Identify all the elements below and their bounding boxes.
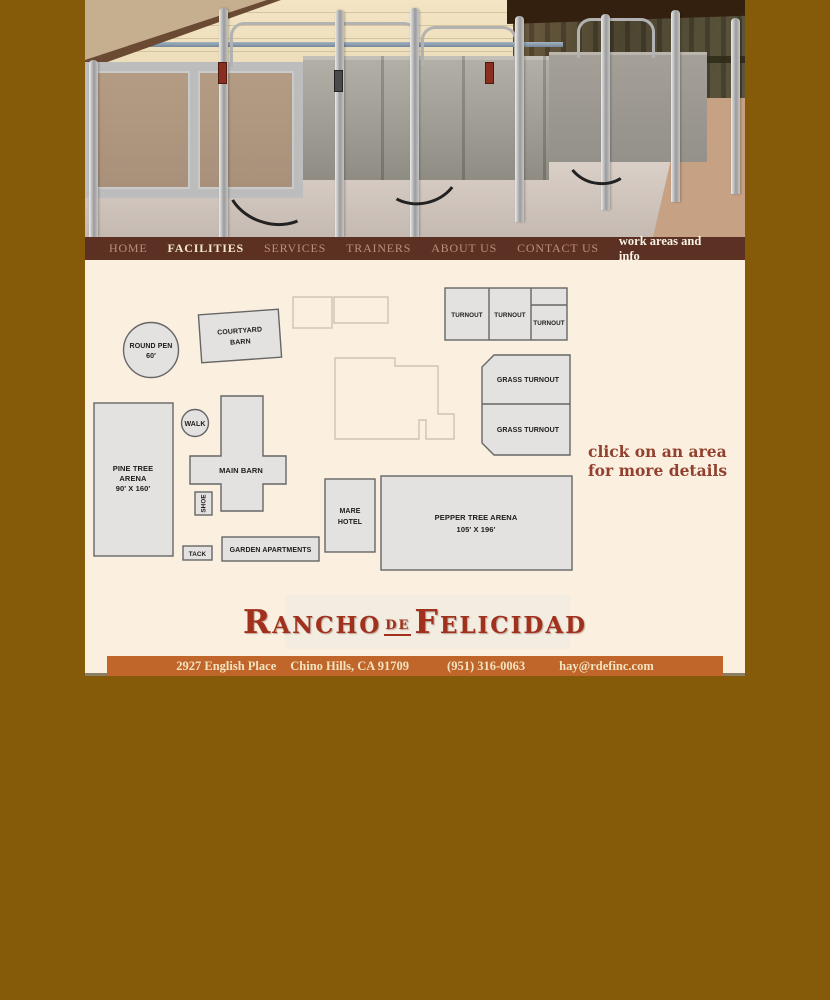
svg-text:SHOE: SHOE — [201, 494, 208, 512]
svg-text:ROUND PEN: ROUND PEN — [130, 343, 173, 350]
logo-word-rancho: Rancho — [243, 602, 381, 641]
map-walker[interactable]: WALK — [182, 410, 209, 437]
map-round-pen[interactable]: ROUND PEN 60′ — [124, 323, 179, 378]
main-nav: HOME FACILITIES SERVICES TRAINERS ABOUT … — [85, 237, 745, 260]
header-photo — [85, 0, 745, 237]
photo-overhead-arm — [230, 22, 418, 67]
svg-text:MAIN BARN: MAIN BARN — [219, 466, 263, 475]
svg-text:TURNOUT: TURNOUT — [494, 312, 526, 319]
svg-text:TACK: TACK — [189, 551, 207, 558]
footer-phone: (951) 316-0063 — [447, 659, 525, 674]
map-shoe[interactable]: SHOE — [195, 492, 212, 515]
svg-text:GRASS TURNOUT: GRASS TURNOUT — [497, 427, 560, 434]
nav-item-facilities[interactable]: FACILITIES — [168, 241, 244, 256]
nav-item-aboutus[interactable]: ABOUT US — [431, 241, 497, 256]
nav-section-label: work areas and info — [619, 234, 721, 264]
svg-text:MARE: MARE — [339, 508, 360, 515]
svg-text:BARN: BARN — [230, 338, 251, 346]
map-hint-line1: click on an area — [588, 442, 738, 461]
footer-bar: 2927 English Place Chino Hills, CA 91709… — [107, 656, 723, 676]
nav-item-home[interactable]: HOME — [109, 241, 148, 256]
map-outline-building — [334, 297, 388, 323]
photo-overhead-arm — [421, 26, 517, 66]
svg-text:GRASS TURNOUT: GRASS TURNOUT — [497, 377, 560, 384]
logo-word-de: de — [384, 612, 411, 636]
facilities-map: ROUND PEN 60′ COURTYARD BARN TURNOUT TUR… — [85, 260, 745, 596]
page: HOME FACILITIES SERVICES TRAINERS ABOUT … — [85, 0, 745, 676]
svg-text:HOTEL: HOTEL — [338, 519, 363, 526]
nav-item-trainers[interactable]: TRAINERS — [346, 241, 411, 256]
photo-post — [731, 18, 740, 194]
map-hint-text: click on an area for more details — [588, 442, 738, 480]
svg-text:105′ X 196′: 105′ X 196′ — [457, 525, 496, 534]
map-grass-turnouts[interactable]: GRASS TURNOUT GRASS TURNOUT — [482, 355, 570, 455]
footer-city: Chino Hills, CA 91709 — [290, 659, 409, 674]
map-pepper-tree-arena[interactable]: PEPPER TREE ARENA 105′ X 196′ — [381, 476, 572, 570]
map-hint-line2: for more details — [588, 461, 738, 480]
map-garden-apartments[interactable]: GARDEN APARTMENTS — [222, 537, 319, 561]
svg-text:TURNOUT: TURNOUT — [451, 312, 483, 319]
footer-email-link[interactable]: hay@rdefinc.com — [559, 659, 654, 674]
site-logo[interactable]: RanchodeFelicidad — [85, 602, 745, 641]
photo-wash-fixture — [485, 62, 494, 84]
photo-overhead-arm — [577, 18, 655, 58]
svg-text:WALK: WALK — [184, 421, 205, 428]
nav-item-services[interactable]: SERVICES — [264, 241, 326, 256]
svg-text:90′ X 160′: 90′ X 160′ — [116, 484, 151, 493]
svg-text:PINE TREE: PINE TREE — [113, 464, 154, 473]
svg-text:PEPPER TREE ARENA: PEPPER TREE ARENA — [435, 513, 518, 522]
logo-word-felicidad: Felicidad — [414, 602, 587, 641]
photo-post — [335, 10, 344, 237]
footer-address: 2927 English Place — [176, 659, 276, 674]
map-outline-building — [335, 358, 454, 439]
map-pine-tree-arena[interactable]: PINE TREE ARENA 90′ X 160′ — [94, 403, 173, 556]
photo-post — [671, 10, 680, 202]
map-courtyard-barn[interactable]: COURTYARD BARN — [198, 309, 281, 362]
map-outline-building — [293, 297, 332, 328]
map-mare-hotel[interactable]: MARE HOTEL — [325, 479, 375, 552]
svg-text:60′: 60′ — [146, 353, 156, 360]
svg-text:TURNOUT: TURNOUT — [533, 320, 565, 327]
map-turnouts[interactable]: TURNOUT TURNOUT TURNOUT — [445, 288, 567, 340]
photo-post — [515, 16, 524, 222]
map-tack[interactable]: TACK — [183, 546, 212, 560]
svg-text:GARDEN APARTMENTS: GARDEN APARTMENTS — [230, 547, 312, 554]
nav-item-contactus[interactable]: CONTACT US — [517, 241, 599, 256]
photo-post — [89, 60, 98, 237]
svg-text:ARENA: ARENA — [119, 474, 147, 483]
photo-wash-fixture — [218, 62, 227, 84]
photo-panel-inset — [94, 71, 190, 189]
photo-post — [219, 8, 228, 237]
photo-wash-fixture — [334, 70, 343, 92]
